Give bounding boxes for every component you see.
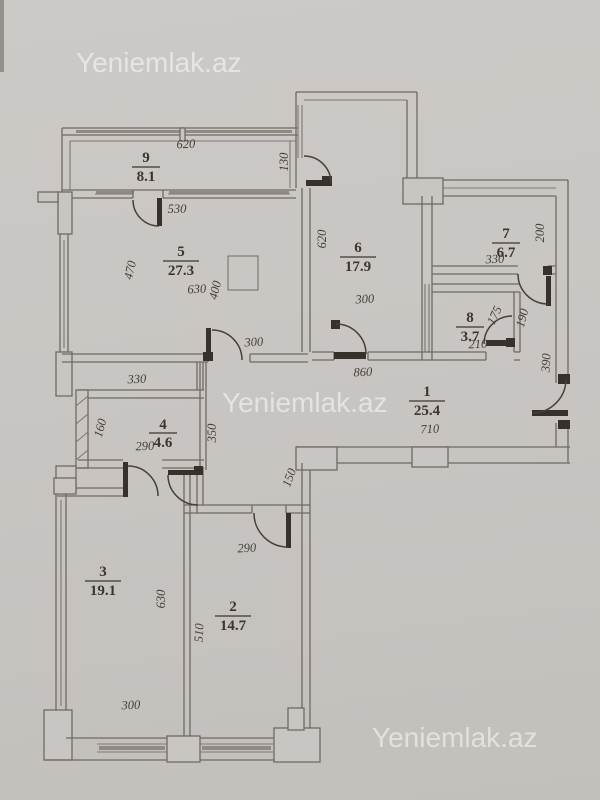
door-swing-arc — [133, 200, 159, 226]
photo-edge-shadow — [0, 0, 4, 72]
room-area: 17.9 — [345, 259, 371, 275]
door-leaf — [123, 462, 128, 497]
door-leaf — [546, 276, 551, 306]
dimension-label: 290 — [237, 540, 257, 555]
dimension-label: 160 — [91, 416, 110, 438]
dimension-label: 530 — [168, 202, 188, 216]
room-area: 19.1 — [90, 583, 116, 599]
dimension-label: 710 — [420, 421, 440, 436]
watermark-text: Yeniemlak.az — [372, 722, 538, 753]
dimension-label: 350 — [205, 423, 219, 444]
dimension-label: 400 — [206, 279, 224, 301]
door-swing-arc — [168, 475, 198, 505]
room-number: 7 — [502, 226, 510, 242]
dimension-label: 390 — [538, 352, 553, 373]
door-leaf — [168, 470, 198, 475]
floor-plan-svg: 125.4214.7319.144.6527.3617.976.783.798.… — [0, 0, 600, 800]
dimension-label: 190 — [513, 306, 532, 328]
room-number: 1 — [423, 384, 431, 400]
door-leaf — [334, 352, 366, 359]
door-hinge — [543, 266, 552, 275]
room-number: 5 — [177, 244, 185, 260]
dimension-label: 290 — [135, 439, 155, 454]
dimension-label: 300 — [354, 291, 375, 306]
door-leaf — [157, 198, 162, 226]
dimension-label: 330 — [484, 252, 505, 267]
door-swing-arc — [518, 274, 548, 304]
door-swing-arc — [212, 330, 242, 360]
room-number: 4 — [159, 417, 167, 433]
watermark-text: Yeniemlak.az — [76, 47, 242, 78]
door-hinge — [558, 374, 570, 384]
dimension-label: 620 — [176, 137, 196, 152]
walls-layer — [38, 92, 570, 762]
dimension-label: 300 — [243, 334, 264, 349]
door-swing-arc — [532, 379, 566, 413]
dimension-label: 510 — [192, 622, 207, 642]
watermark-text: Yeniemlak.az — [222, 387, 388, 418]
dimension-label: 630 — [154, 589, 168, 609]
dimension-label: 200 — [533, 223, 547, 243]
door-hinge — [506, 338, 515, 347]
room-area: 8.1 — [137, 169, 156, 185]
photographed-floor-plan: 125.4214.7319.144.6527.3617.976.783.798.… — [0, 0, 600, 800]
room-area: 25.4 — [414, 403, 441, 419]
room-number: 3 — [99, 564, 107, 580]
dimension-label: 330 — [126, 372, 147, 387]
dimension-label: 860 — [353, 365, 373, 380]
dimension-label: 130 — [277, 152, 291, 172]
dimension-label: 470 — [121, 259, 139, 281]
dimension-label: 300 — [120, 698, 141, 713]
room-area: 27.3 — [168, 263, 194, 279]
dimension-label: 630 — [187, 281, 207, 296]
room-number: 2 — [229, 599, 237, 615]
room-number: 8 — [466, 310, 474, 326]
dimension-label: 175 — [484, 304, 505, 327]
room-number: 6 — [354, 240, 362, 256]
room-area: 14.7 — [220, 618, 247, 634]
door-leaf — [286, 513, 291, 548]
room-area: 4.6 — [154, 435, 173, 451]
dimension-label: 210 — [468, 337, 488, 352]
room-number: 9 — [142, 150, 150, 166]
door-swing-arc — [254, 513, 288, 547]
door-swing-arc — [128, 466, 158, 496]
dimension-label: 620 — [315, 229, 329, 249]
door-hinge — [203, 352, 213, 361]
door-hinge — [194, 466, 203, 475]
door-hinge — [558, 420, 570, 429]
door-swing-arc — [336, 324, 366, 354]
